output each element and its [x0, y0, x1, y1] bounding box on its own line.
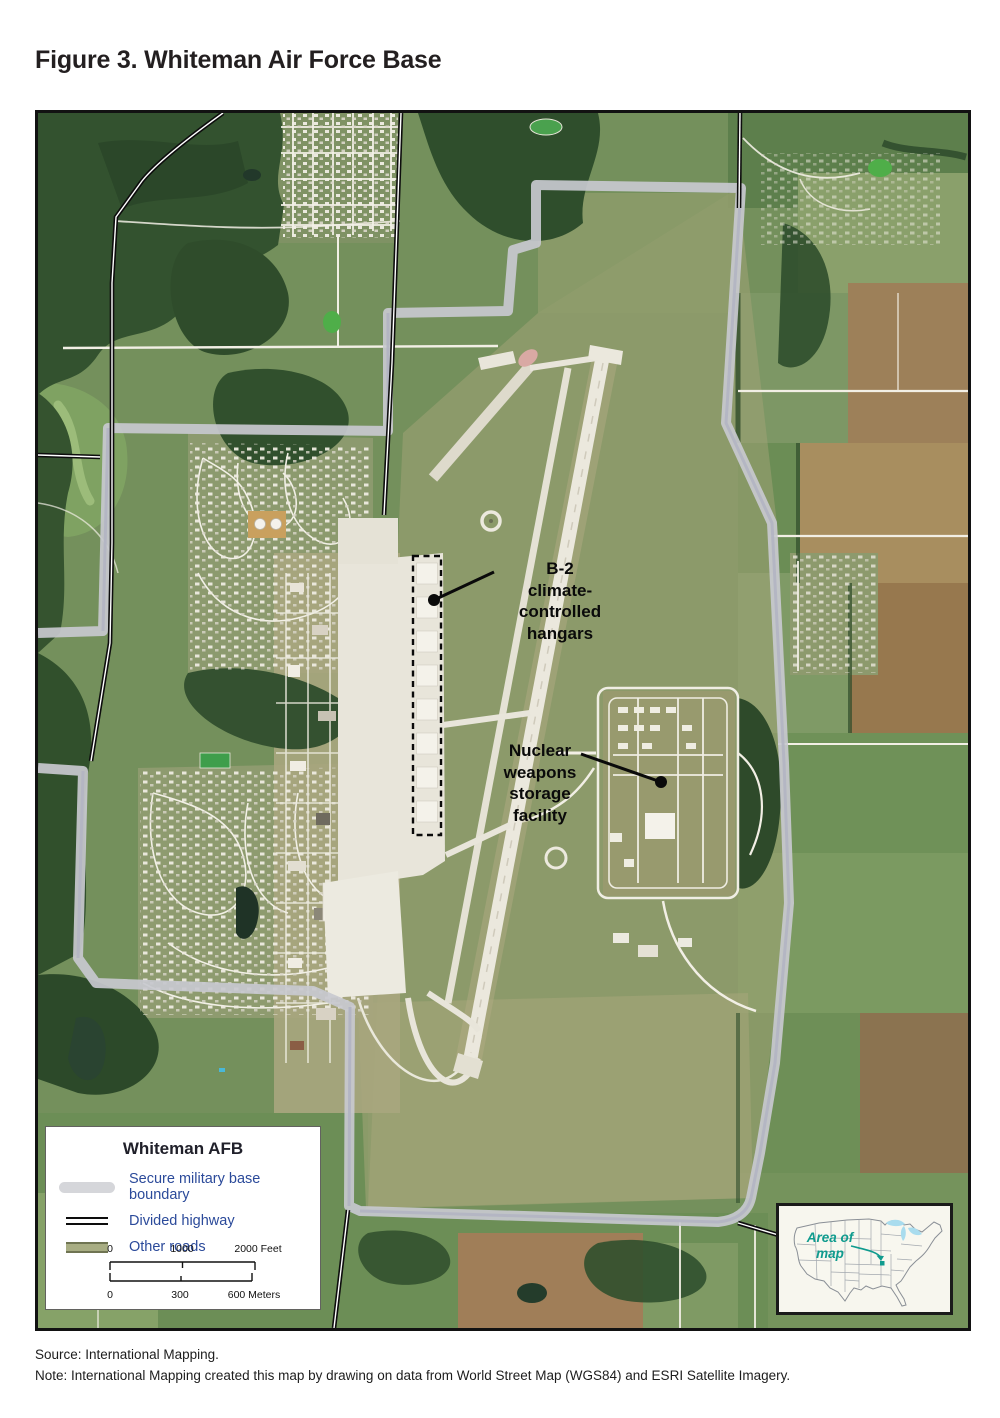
satellite-map-figure: B-2 climate- controlled hangars Nuclear …: [35, 110, 971, 1331]
nuclear-storage-label: Nuclear weapons storage facility: [470, 740, 610, 826]
divided-highway-swatch: [66, 1217, 108, 1225]
locator-inset: Area of map: [776, 1203, 953, 1315]
scale-bar-graphic: [106, 1257, 276, 1289]
scale-feet-2000: 2000 Feet: [234, 1243, 281, 1255]
legend-item-boundary: Secure military base boundary: [59, 1171, 320, 1203]
figure-title: Figure 3. Whiteman Air Force Base: [35, 46, 441, 75]
note-line: Note: International Mapping created this…: [35, 1368, 790, 1383]
source-line: Source: International Mapping.: [35, 1347, 219, 1362]
scale-bar: 0 1000 2000 Feet 0 300 600 Meters: [106, 1243, 276, 1303]
inset-label: Area of map: [795, 1230, 865, 1262]
nuclear-storage-marker-dot: [655, 776, 667, 788]
scale-feet-0: 0: [107, 1243, 113, 1255]
scale-meters-0: 0: [107, 1289, 113, 1301]
scale-meters-600: 600 Meters: [228, 1289, 281, 1301]
scale-meters-300: 300: [171, 1289, 189, 1301]
b2-hangars-label: B-2 climate- controlled hangars: [475, 558, 645, 644]
legend-title: Whiteman AFB: [46, 1139, 320, 1159]
legend: Whiteman AFB Secure military base bounda…: [45, 1126, 321, 1310]
other-roads-swatch: [66, 1242, 108, 1253]
legend-item-label: Secure military base boundary: [129, 1171, 320, 1203]
b2-hangars-marker-dot: [428, 594, 440, 606]
legend-item-divided-highway: Divided highway: [59, 1213, 320, 1229]
boundary-swatch: [59, 1182, 115, 1193]
scale-feet-1000: 1000: [170, 1243, 193, 1255]
legend-item-label: Divided highway: [129, 1213, 235, 1229]
document-page: Figure 3. Whiteman Air Force Base: [0, 0, 1000, 1418]
inset-location-marker: [880, 1261, 885, 1266]
